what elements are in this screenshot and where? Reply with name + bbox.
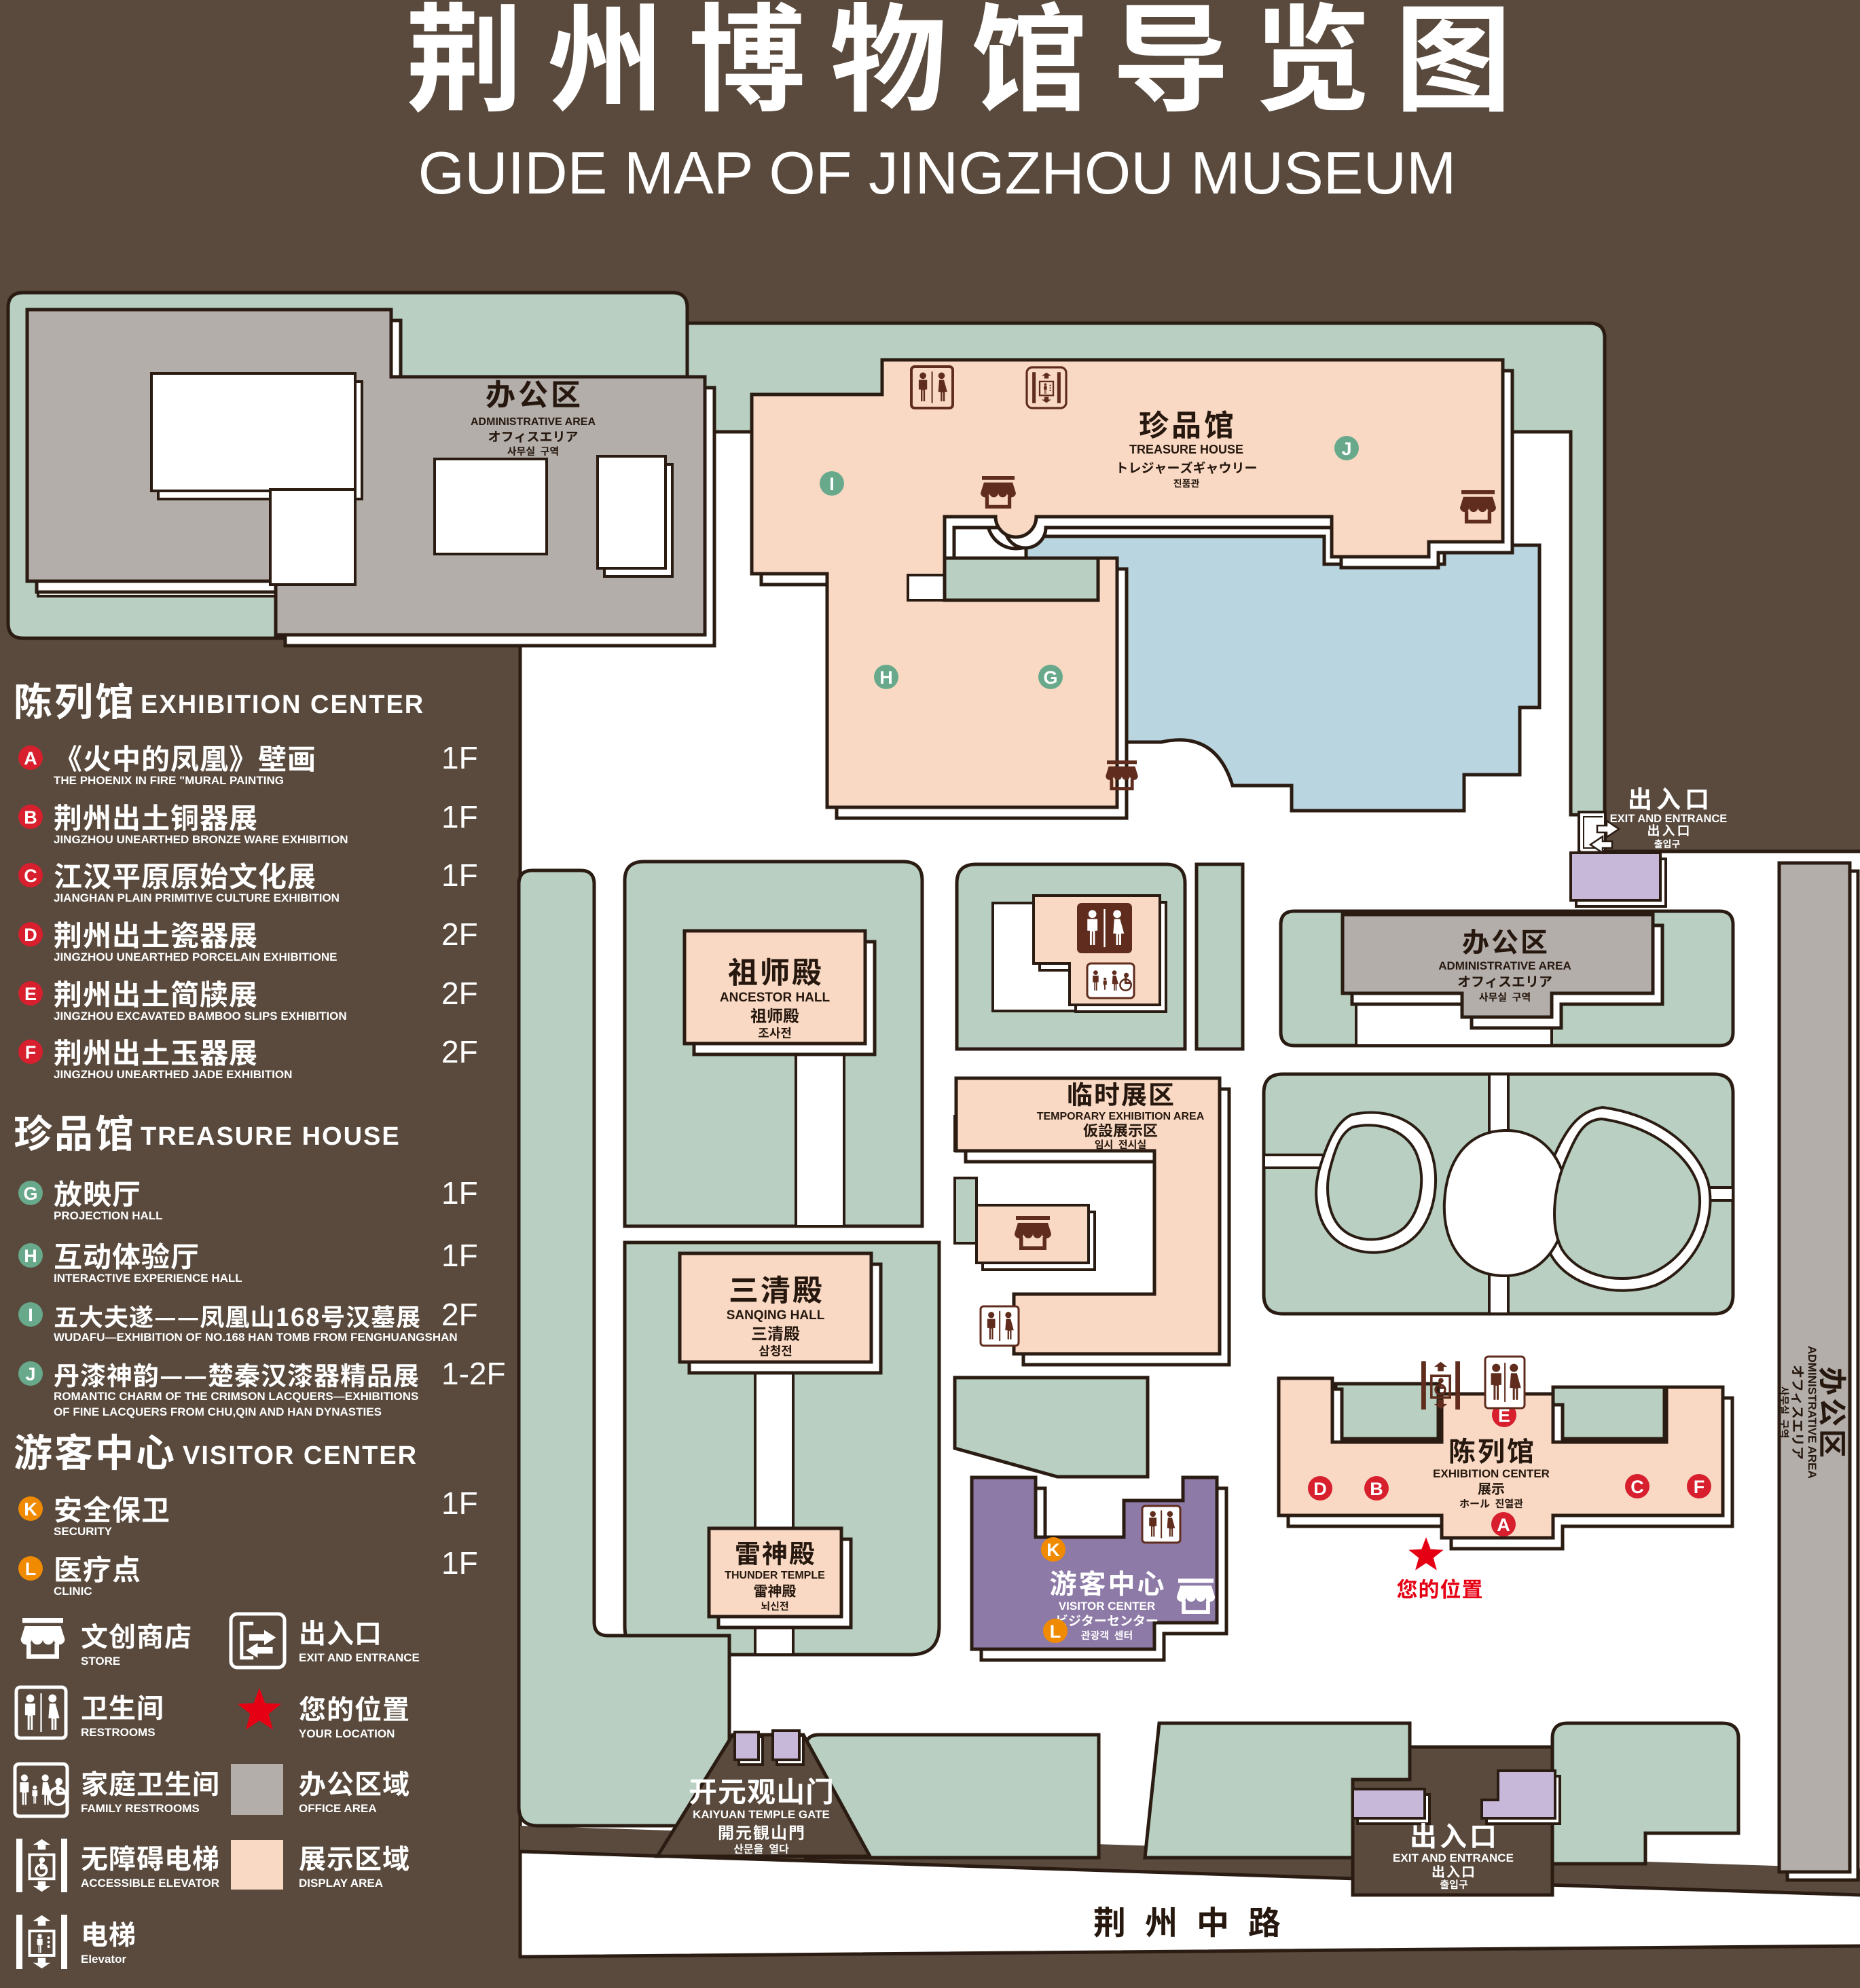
svg-text:JINGZHOU UNEARTHED JADE EXHIBI: JINGZHOU UNEARTHED JADE EXHIBITION bbox=[54, 1068, 292, 1081]
svg-text:I: I bbox=[28, 1305, 33, 1325]
svg-text:K: K bbox=[1046, 1540, 1060, 1560]
svg-text:OF FINE LACQUERS FROM CHU,QIN: OF FINE LACQUERS FROM CHU,QIN AND HAN DY… bbox=[54, 1405, 382, 1418]
svg-text:ROMANTIC CHARM OF THE CRIMSON: ROMANTIC CHARM OF THE CRIMSON LACQUERS—E… bbox=[54, 1390, 418, 1403]
svg-text:D: D bbox=[1313, 1479, 1327, 1499]
svg-text:TREASURE HOUSE: TREASURE HOUSE bbox=[1129, 443, 1243, 456]
svg-text:THUNDER TEMPLE: THUNDER TEMPLE bbox=[725, 1570, 825, 1581]
svg-text:CLINIC: CLINIC bbox=[54, 1585, 92, 1598]
svg-text:EXIT AND ENTRANCE: EXIT AND ENTRANCE bbox=[1610, 813, 1728, 825]
svg-text:TEMPORARY EXHIBITION AREA: TEMPORARY EXHIBITION AREA bbox=[1037, 1111, 1205, 1122]
svg-text:Elevator: Elevator bbox=[81, 1953, 126, 1966]
svg-text:ACCESSIBLE ELEVATOR: ACCESSIBLE ELEVATOR bbox=[81, 1877, 219, 1890]
svg-text:TREASURE HOUSE: TREASURE HOUSE bbox=[141, 1122, 401, 1151]
svg-text:JIANGHAN PLAIN PRIMITIVE CULTU: JIANGHAN PLAIN PRIMITIVE CULTURE EXHIBIT… bbox=[54, 891, 340, 904]
svg-text:F: F bbox=[1694, 1477, 1705, 1497]
svg-text:ANCESTOR HALL: ANCESTOR HALL bbox=[720, 991, 831, 1005]
svg-text:L: L bbox=[25, 1559, 37, 1579]
svg-text:E: E bbox=[24, 984, 37, 1004]
svg-text:JINGZHOU UNEARTHED PORCELAIN E: JINGZHOU UNEARTHED PORCELAIN EXHIBITIONE bbox=[54, 951, 337, 963]
svg-text:OFFICE AREA: OFFICE AREA bbox=[299, 1802, 377, 1815]
svg-text:H: H bbox=[879, 667, 893, 688]
svg-text:STORE: STORE bbox=[81, 1655, 120, 1668]
svg-text:EXHIBITION CENTER: EXHIBITION CENTER bbox=[141, 691, 424, 719]
svg-text:VISITOR CENTER: VISITOR CENTER bbox=[183, 1441, 418, 1470]
svg-text:THE PHOENIX IN FIRE "MURAL PAI: THE PHOENIX IN FIRE "MURAL PAINTING bbox=[54, 774, 284, 787]
svg-text:YOUR LOCATION: YOUR LOCATION bbox=[299, 1727, 395, 1740]
svg-text:1F: 1F bbox=[441, 1545, 478, 1581]
svg-text:ADMINISTRATIVE AREA: ADMINISTRATIVE AREA bbox=[471, 416, 596, 428]
svg-text:ADMINISTRATIVE AREA: ADMINISTRATIVE AREA bbox=[1438, 959, 1571, 972]
svg-text:1F: 1F bbox=[441, 1175, 478, 1211]
svg-text:1F: 1F bbox=[441, 1238, 478, 1273]
svg-text:RESTROOMS: RESTROOMS bbox=[81, 1726, 156, 1739]
svg-text:PROJECTION HALL: PROJECTION HALL bbox=[54, 1209, 163, 1222]
svg-text:2F: 2F bbox=[441, 1034, 478, 1069]
svg-text:DISPLAY AREA: DISPLAY AREA bbox=[299, 1877, 383, 1890]
svg-text:A: A bbox=[1497, 1515, 1510, 1535]
svg-text:JINGZHOU UNEARTHED BRONZE WARE: JINGZHOU UNEARTHED BRONZE WARE EXHIBITIO… bbox=[54, 833, 348, 846]
svg-text:EXHIBITION CENTER: EXHIBITION CENTER bbox=[1433, 1467, 1550, 1480]
svg-text:1F: 1F bbox=[441, 740, 478, 775]
svg-text:C: C bbox=[1630, 1477, 1644, 1497]
svg-text:SANQING HALL: SANQING HALL bbox=[727, 1308, 825, 1323]
svg-text:2F: 2F bbox=[441, 976, 478, 1011]
svg-text:VISITOR CENTER: VISITOR CENTER bbox=[1059, 1600, 1155, 1613]
svg-text:2F: 2F bbox=[441, 1297, 478, 1332]
svg-text:WUDAFU—EXHIBITION OF NO.168 HA: WUDAFU—EXHIBITION OF NO.168 HAN TOMB FRO… bbox=[54, 1331, 458, 1344]
svg-text:J: J bbox=[1341, 439, 1351, 459]
svg-text:SECURITY: SECURITY bbox=[54, 1525, 113, 1538]
svg-text:1F: 1F bbox=[441, 1486, 478, 1521]
svg-text:KAIYUAN TEMPLE GATE: KAIYUAN TEMPLE GATE bbox=[693, 1808, 830, 1821]
svg-text:EXIT AND ENTRANCE: EXIT AND ENTRANCE bbox=[299, 1651, 420, 1664]
svg-text:FAMILY RESTROOMS: FAMILY RESTROOMS bbox=[81, 1802, 200, 1815]
svg-text:G: G bbox=[23, 1183, 37, 1204]
svg-text:1F: 1F bbox=[441, 799, 478, 834]
svg-text:J: J bbox=[25, 1364, 35, 1384]
svg-text:1-2F: 1-2F bbox=[441, 1356, 506, 1391]
svg-text:C: C bbox=[24, 866, 37, 886]
svg-text:EXIT AND ENTRANCE: EXIT AND ENTRANCE bbox=[1393, 1852, 1514, 1864]
svg-text:F: F bbox=[25, 1042, 37, 1063]
svg-text:H: H bbox=[24, 1246, 37, 1266]
svg-text:K: K bbox=[24, 1499, 37, 1520]
svg-text:G: G bbox=[1043, 667, 1057, 688]
svg-text:ADMINISTRATIVE AREA: ADMINISTRATIVE AREA bbox=[1806, 1346, 1819, 1479]
svg-text:L: L bbox=[1050, 1621, 1061, 1642]
svg-text:I: I bbox=[829, 474, 835, 494]
svg-text:A: A bbox=[24, 748, 37, 769]
svg-text:D: D bbox=[24, 925, 37, 945]
svg-text:2F: 2F bbox=[441, 917, 478, 952]
svg-text:B: B bbox=[1370, 1479, 1383, 1499]
svg-text:1F: 1F bbox=[441, 858, 478, 893]
svg-text:B: B bbox=[24, 807, 37, 828]
svg-text:GUIDE MAP OF JINGZHOU MUSEUM: GUIDE MAP OF JINGZHOU MUSEUM bbox=[418, 139, 1457, 206]
svg-text:INTERACTIVE EXPERIENCE HALL: INTERACTIVE EXPERIENCE HALL bbox=[54, 1272, 242, 1285]
svg-text:JINGZHOU EXCAVATED BAMBOO SLIP: JINGZHOU EXCAVATED BAMBOO SLIPS EXHIBITI… bbox=[54, 1010, 347, 1023]
